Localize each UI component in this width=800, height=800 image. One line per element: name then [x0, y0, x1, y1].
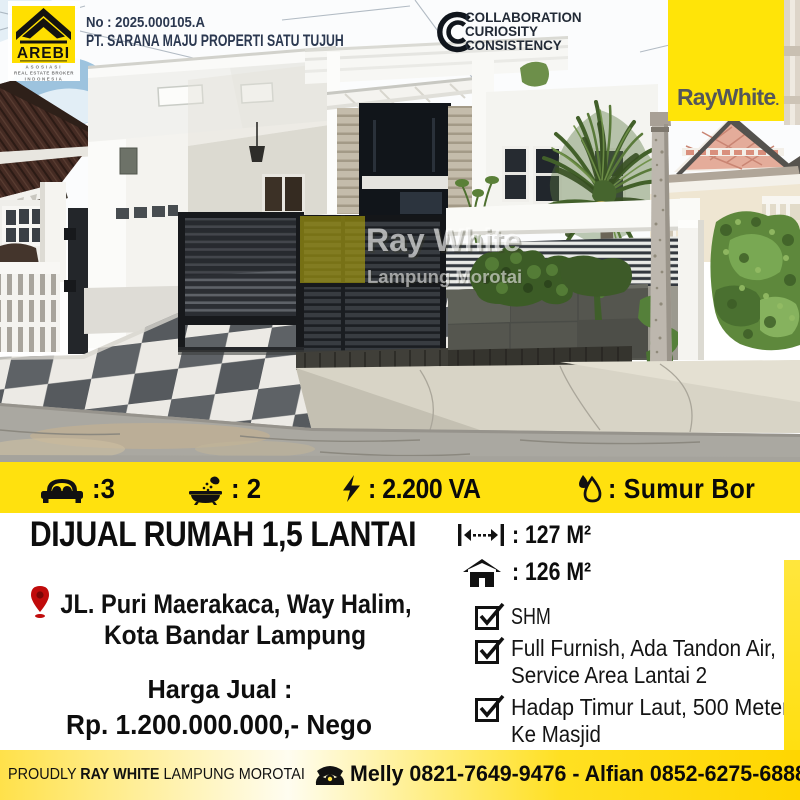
svg-text:AREBI: AREBI: [17, 45, 70, 62]
svg-text:ASOSIASI: ASOSIASI: [26, 65, 63, 70]
svg-text:COLLABORATION: COLLABORATION: [465, 10, 582, 25]
svg-text:INDONESIA: INDONESIA: [25, 77, 64, 82]
svg-text:CURIOSITY: CURIOSITY: [465, 24, 538, 39]
svg-text:CONSISTENCY: CONSISTENCY: [465, 38, 562, 53]
svg-text:REAL ESTATE BROKER: REAL ESTATE BROKER: [14, 71, 74, 76]
svg-text:Lampung Morotai: Lampung Morotai: [367, 266, 522, 287]
svg-text:Ray White: Ray White: [366, 222, 521, 258]
